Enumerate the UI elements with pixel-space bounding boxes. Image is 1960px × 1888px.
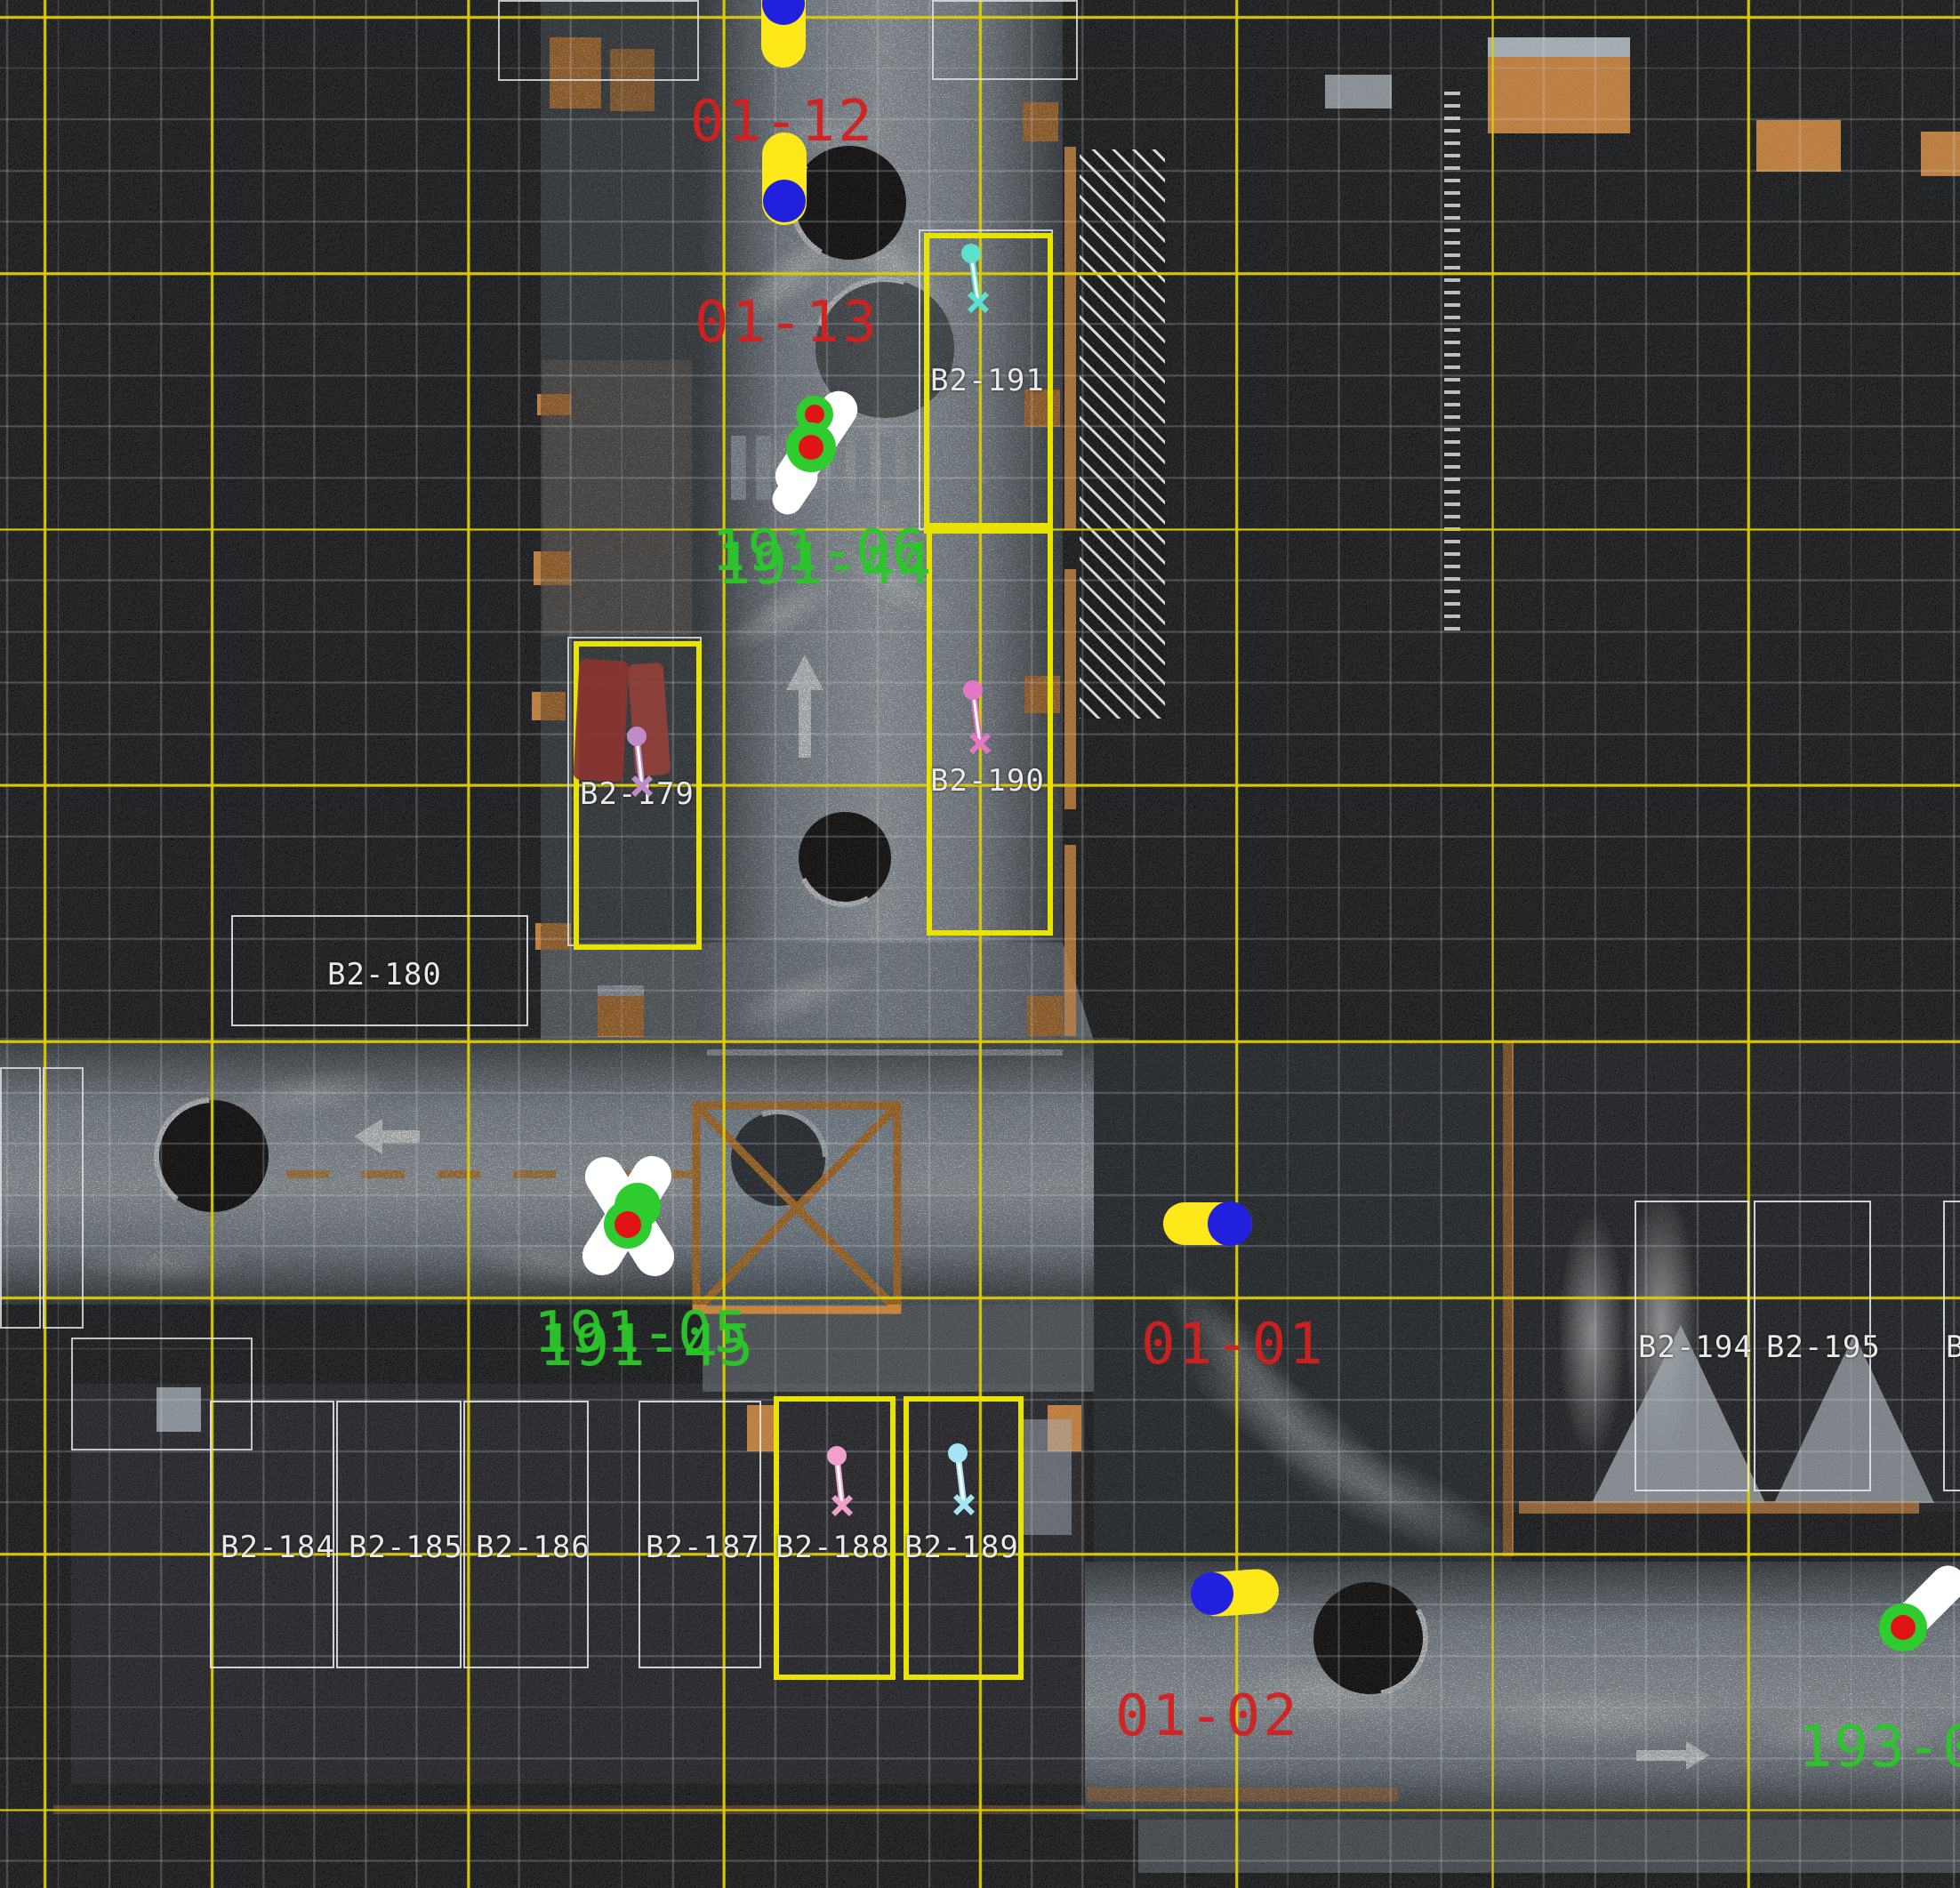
parking-spot-label: B2-185 — [349, 1530, 463, 1565]
vehicle-heading-dot — [763, 180, 806, 222]
parking-outline-box[interactable] — [498, 0, 699, 81]
parking-spot-label: B2-187 — [646, 1530, 760, 1565]
parking-spot-label: B2-184 — [221, 1530, 335, 1565]
parking-spot-label: B2-190 — [930, 763, 1045, 799]
pedestrian-dot[interactable] — [963, 680, 983, 700]
agent-track-label: 191-45 — [539, 1314, 755, 1379]
pedestrian-dot[interactable] — [961, 244, 981, 263]
zone-label-red: 01-02 — [1115, 1683, 1300, 1749]
agent-track-label: 191-44 — [717, 532, 933, 598]
agent-track-label: 193-0 — [1798, 1715, 1960, 1780]
obstacle-object[interactable] — [573, 659, 629, 783]
parking-outline-box[interactable] — [43, 1067, 84, 1329]
pedestrian-dot[interactable] — [827, 1446, 847, 1466]
parking-spot-label: B2-194 — [1638, 1330, 1753, 1365]
parking-spot-box[interactable] — [927, 523, 1053, 936]
annotation-layer: B2-191B2-190B2-179B2-180B2-184B2-185B2-1… — [0, 0, 1960, 1888]
parking-spot-label: B2-196 — [1946, 1330, 1960, 1365]
parking-spot-label: B2-191 — [930, 363, 1045, 398]
parking-spot-label: B2-189 — [904, 1530, 1019, 1565]
pedestrian-dot[interactable] — [627, 727, 647, 746]
parking-spot-label: B2-188 — [775, 1530, 890, 1565]
parking-outline-box[interactable] — [932, 0, 1078, 80]
pedestrian-dot[interactable] — [948, 1443, 968, 1463]
agent-center-dot — [799, 435, 823, 460]
parking-outline-box[interactable] — [0, 1067, 41, 1329]
agent-center-dot — [805, 405, 824, 424]
agent-center-dot — [1891, 1615, 1916, 1640]
pointcloud-map-viewport: B2-191B2-190B2-179B2-180B2-184B2-185B2-1… — [0, 0, 1960, 1888]
parking-spot-label: B2-195 — [1766, 1330, 1881, 1365]
parking-spot-label: B2-186 — [476, 1530, 590, 1565]
agent-center-dot — [615, 1211, 641, 1238]
vehicle-heading-dot — [1191, 1572, 1233, 1615]
zone-label-red: 01-01 — [1141, 1312, 1326, 1378]
zone-label-red: 01-13 — [695, 290, 880, 356]
vehicle-heading-dot — [1208, 1201, 1252, 1246]
parking-spot-label: B2-180 — [327, 957, 442, 992]
